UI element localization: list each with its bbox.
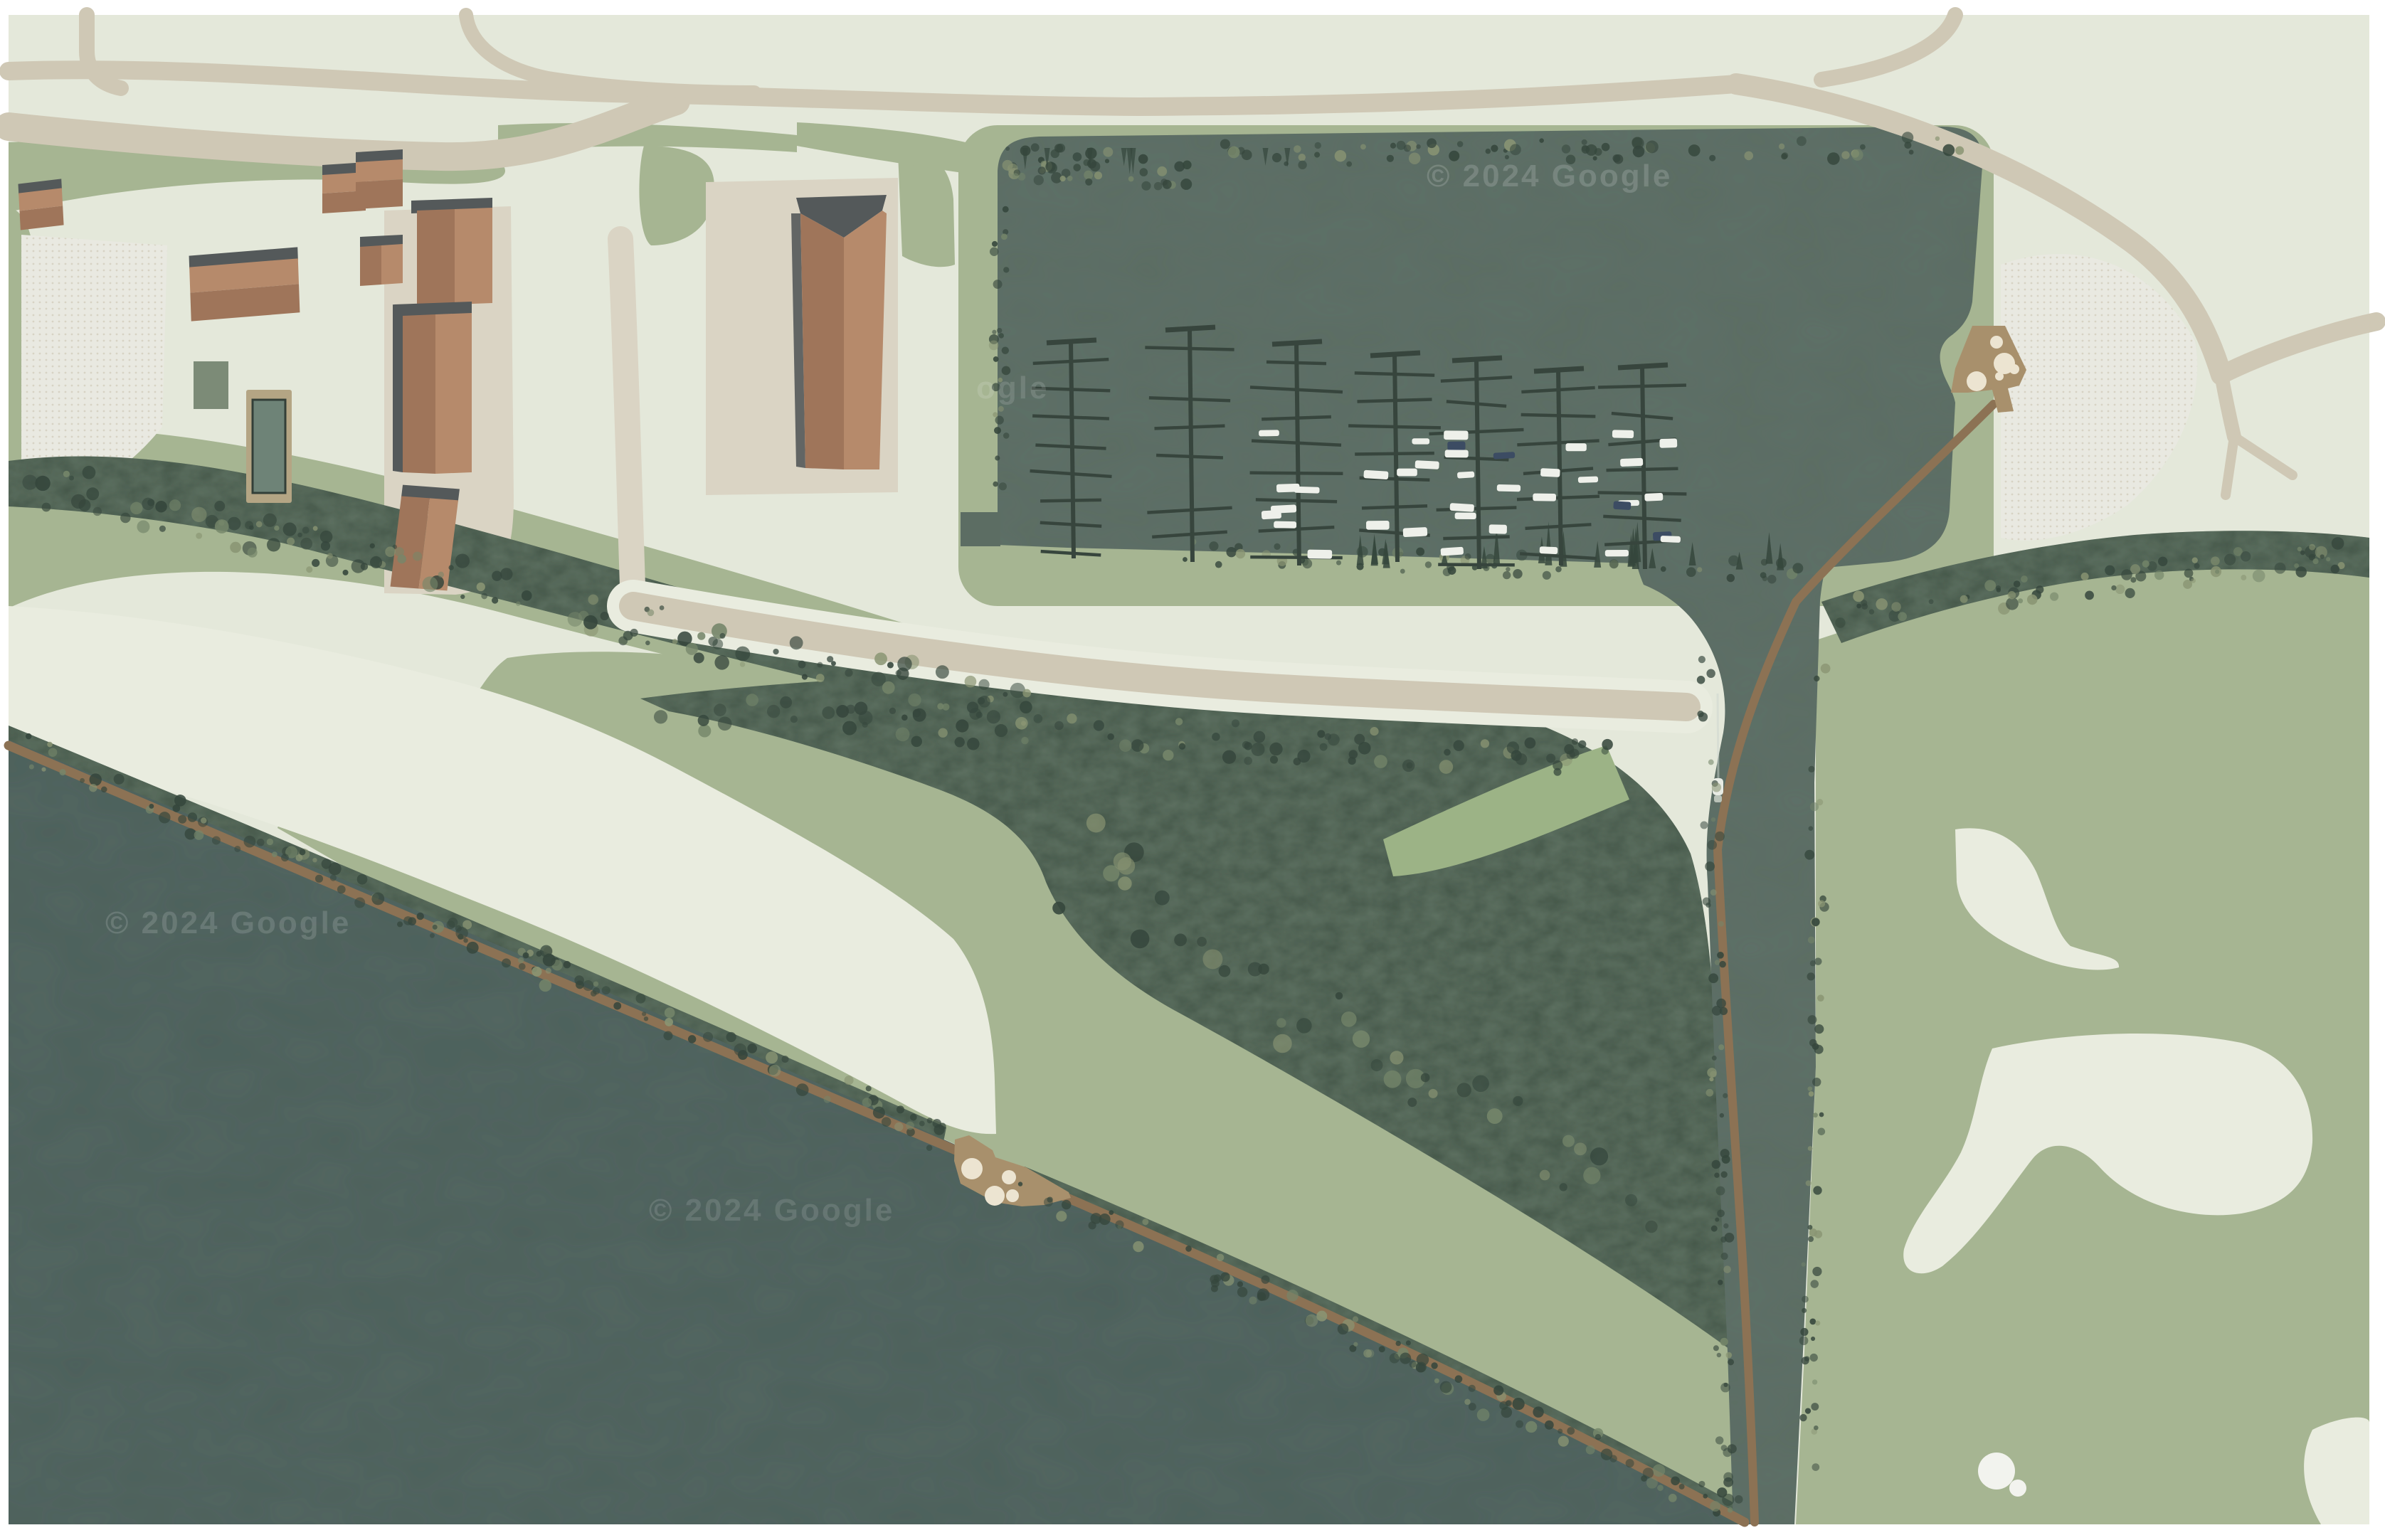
google-watermark: © 2024 Google bbox=[1427, 159, 1672, 193]
fuel-tank bbox=[1002, 1170, 1016, 1184]
building bbox=[360, 235, 403, 286]
moored-boat bbox=[1493, 452, 1516, 460]
moored-boat bbox=[1415, 460, 1439, 469]
boat-ramp-notch bbox=[961, 512, 1000, 546]
moored-boat bbox=[1605, 550, 1629, 556]
building bbox=[189, 247, 300, 321]
moored-boat bbox=[1274, 521, 1296, 529]
moored-boat bbox=[1445, 450, 1469, 457]
building bbox=[393, 302, 472, 474]
white-tank bbox=[1978, 1453, 2015, 1489]
moored-boat bbox=[1497, 484, 1521, 492]
storage-tank bbox=[1995, 372, 2004, 381]
storage-tank bbox=[1967, 371, 1987, 391]
swimming-pool bbox=[246, 390, 292, 503]
moored-boat bbox=[1363, 470, 1388, 479]
moored-boat bbox=[1366, 521, 1390, 530]
moored-boat bbox=[1271, 504, 1296, 514]
moored-boat bbox=[1412, 438, 1429, 444]
moored-boat bbox=[1259, 430, 1279, 436]
storage-tank bbox=[1990, 336, 2003, 349]
moored-boat bbox=[1540, 546, 1558, 554]
building bbox=[411, 198, 492, 306]
fuel-tank bbox=[1006, 1189, 1019, 1202]
moored-boat bbox=[1447, 441, 1465, 450]
moored-boat bbox=[1661, 536, 1681, 543]
moored-boat bbox=[1276, 484, 1300, 493]
moored-boat bbox=[1308, 550, 1333, 559]
moored-boat bbox=[1489, 524, 1507, 533]
building-barn bbox=[791, 195, 887, 469]
boat-wake bbox=[1718, 694, 1718, 781]
moored-boat bbox=[1403, 527, 1428, 537]
moored-boat bbox=[1455, 513, 1476, 520]
google-watermark: © 2024 Google bbox=[105, 906, 351, 940]
building bbox=[18, 179, 64, 230]
moored-boat bbox=[1612, 430, 1634, 438]
moored-boat bbox=[1540, 468, 1560, 477]
google-watermark-partial: ogle bbox=[976, 371, 1049, 405]
moored-boat bbox=[1533, 494, 1556, 501]
moored-boat bbox=[1620, 458, 1643, 467]
satellite-map: © 2024 Google © 2024 Google © 2024 Googl… bbox=[0, 0, 2385, 1540]
moored-boat bbox=[1578, 476, 1598, 483]
green-court bbox=[194, 361, 228, 409]
fuel-tank bbox=[961, 1158, 983, 1179]
moored-boat bbox=[1565, 443, 1586, 451]
white-tank bbox=[2009, 1480, 2026, 1497]
moored-boat bbox=[1613, 501, 1631, 510]
moored-boat bbox=[1644, 493, 1663, 501]
storage-tank bbox=[2009, 364, 2019, 374]
moored-boat bbox=[1444, 430, 1468, 440]
moored-boat bbox=[1457, 472, 1475, 479]
map-viewport[interactable]: © 2024 Google © 2024 Google © 2024 Googl… bbox=[0, 0, 2385, 1540]
moored-boat bbox=[1440, 547, 1464, 556]
moored-boat bbox=[1449, 503, 1474, 512]
fuel-tank bbox=[985, 1186, 1005, 1206]
moored-boat bbox=[1397, 469, 1417, 477]
moored-boat bbox=[1659, 438, 1677, 448]
google-watermark: © 2024 Google bbox=[649, 1193, 894, 1228]
